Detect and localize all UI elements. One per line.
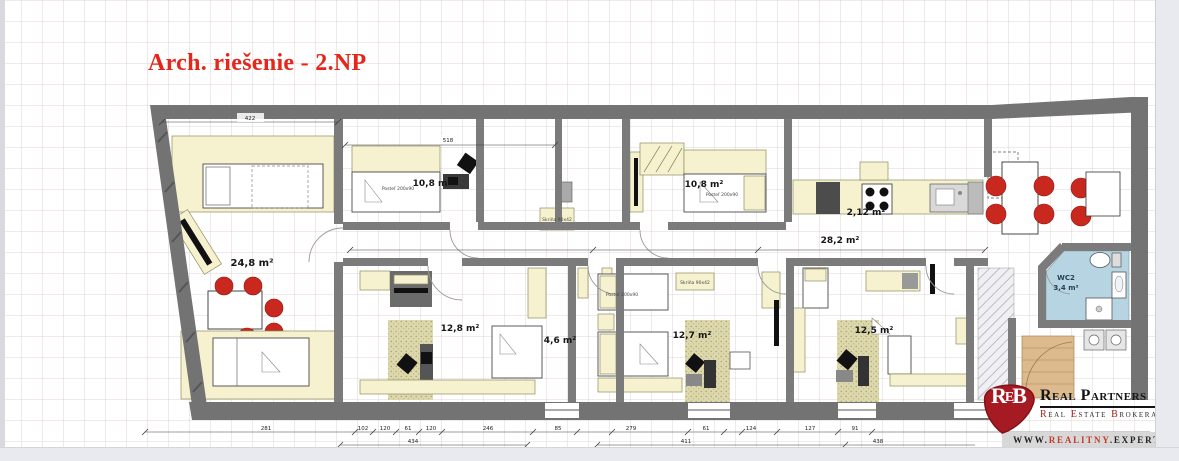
dim-bottom-4: 61 [405,426,412,432]
toilet [1090,253,1110,268]
tagline-state: state [1079,409,1112,420]
logo-tagline: Real Estate Brokerage [1040,409,1172,420]
desk [858,356,869,386]
room-label-hall-living: 28,2 m² [821,236,860,246]
room-label-bedroom-2: 10,8 m² [685,180,724,190]
bed-2 [888,336,911,374]
room-label-bedroom-4: 12,7 m² [673,331,712,341]
dim-bottom-7: 85 [555,426,562,432]
logo-monogram: REB [980,385,1038,407]
monogram-e: E [1005,390,1014,405]
page-edge-right [1155,0,1179,461]
bed-label-1: Posteľ 200x90 [382,186,414,192]
page-title: Arch. riešenie - 2.NP [148,50,366,77]
dim-bottom-6: 246 [483,426,494,432]
utility-appliances [1084,330,1126,350]
room-area-wc2: 3,4 m² [1053,284,1078,292]
side-table [1086,172,1120,216]
room-label-bedroom-1: 10,8 m² [413,179,452,189]
room-label-bedroom-3: 12,8 m² [441,324,480,334]
room-label-kitchen: 2,12 m² [847,208,886,218]
bedroom-2-furniture [630,143,766,212]
tagline-e: E [1071,409,1079,420]
dim-lower-1: 434 [408,439,419,445]
dim-bottom-12: 91 [852,426,859,432]
bed-label-3: Posteľ 200x90 [606,292,638,298]
kitchen-furniture [793,162,983,214]
dining-furniture [986,152,1120,234]
bed [492,326,542,378]
website-brand: REALITNY [1049,435,1110,445]
chair [457,153,479,174]
room-label-bedroom-5: 12,5 m² [855,326,894,336]
logo-company-name: Real Partners [1040,387,1172,408]
tagline-eal: eal [1048,409,1071,420]
page: Arch. riešenie - 2.NP [0,0,1179,461]
bedroom-3-furniture [360,268,546,400]
dim-lower-3: 438 [873,439,884,445]
dim-bottom-9: 61 [703,426,710,432]
brand-logo: REB Real Partners Real Estate Brokerage … [978,381,1172,447]
monogram-b: B [1012,383,1027,408]
bed-label-2: Posteľ 200x90 [706,192,738,198]
page-edge-left [0,0,5,461]
page-edge-bottom [0,447,1179,461]
wardrobe [640,143,684,175]
dim-bottom-10: 124 [746,426,757,432]
headboard [352,146,440,172]
dim-bottom-3: 120 [380,426,391,432]
wardrobe-label-1: Skriňa 90x42 [542,216,572,223]
dim-bottom-8: 279 [626,426,637,432]
desk [704,360,716,388]
dining-table [1002,162,1038,234]
dim-top-1: 422 [245,116,256,122]
room-label-hallway: 4,6 m² [544,336,576,346]
dim-top-2: 518 [443,138,454,144]
room-label-wc2: WC2 [1057,274,1075,282]
dim-bottom-1: 281 [261,426,272,432]
website-suffix: .EXPERT [1110,435,1161,445]
wardrobe-label-2: Skriňa 90x42 [680,279,710,286]
room-label-living: 24,8 m² [231,258,274,269]
logo-shield: REB [980,381,1038,435]
dim-bottom-11: 127 [805,426,816,432]
bed-2 [213,338,309,386]
table [208,291,262,329]
dim-lower-2: 411 [681,439,692,445]
website-prefix: WWW. [1013,435,1049,445]
dim-bottom-2: 102 [358,426,369,432]
dim-bottom-5: 120 [426,426,437,432]
